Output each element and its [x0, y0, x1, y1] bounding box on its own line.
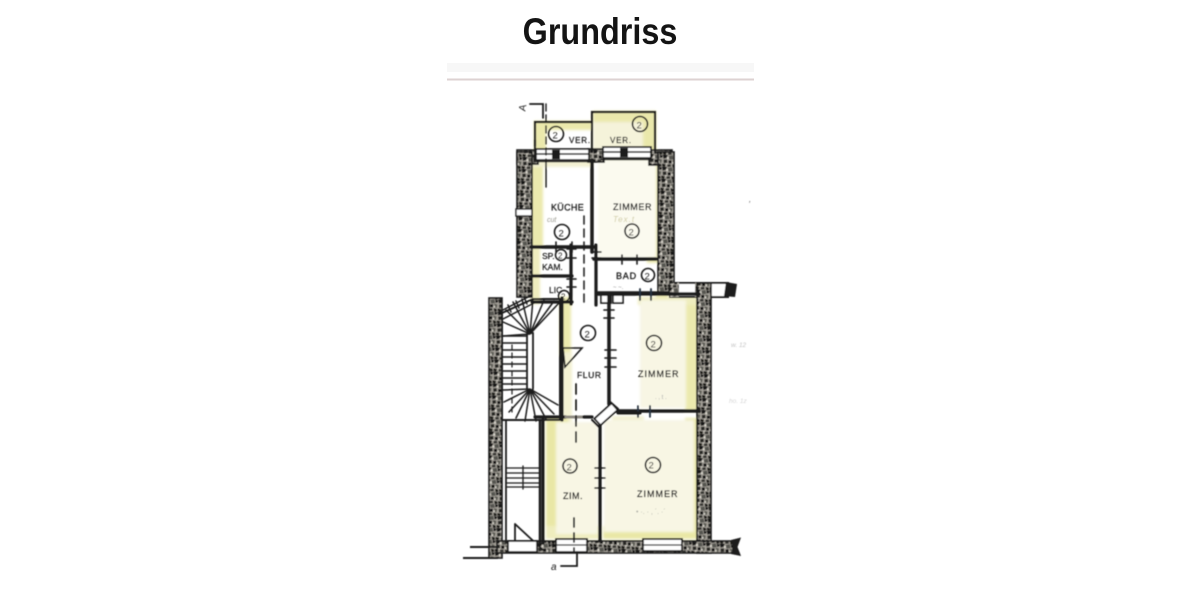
- svg-text:A: A: [517, 103, 529, 112]
- svg-text:VER.: VER.: [610, 136, 632, 145]
- svg-text:2: 2: [651, 340, 656, 351]
- svg-text:2: 2: [559, 229, 564, 240]
- svg-text:~ ~.: ~ ~.: [613, 285, 624, 291]
- svg-text:2: 2: [567, 463, 572, 474]
- svg-text:2: 2: [649, 461, 654, 472]
- svg-text:• ·. · , ´. ·´: • ·. · , ´. ·´: [636, 509, 666, 516]
- svg-text:KAM.: KAM.: [542, 262, 563, 272]
- svg-text:2: 2: [629, 228, 634, 239]
- svg-text:ZIM.: ZIM.: [563, 491, 583, 501]
- svg-text:a: a: [551, 562, 557, 573]
- svg-text:ZIMMER: ZIMMER: [638, 369, 680, 379]
- svg-text:w. 12: w. 12: [731, 342, 747, 349]
- svg-text:ho. 1z: ho. 1z: [729, 398, 747, 405]
- svg-text:2: 2: [645, 272, 650, 283]
- svg-text:′: ′: [749, 201, 751, 208]
- svg-text:SP.: SP.: [542, 251, 555, 261]
- svg-text:VER.: VER.: [569, 136, 591, 145]
- svg-text:ZIMMER: ZIMMER: [613, 202, 652, 212]
- svg-text:2: 2: [585, 330, 590, 341]
- svg-text:cut: cut: [547, 217, 557, 224]
- svg-text:ZIMMER: ZIMMER: [637, 489, 679, 499]
- svg-text:FLUR: FLUR: [577, 370, 602, 380]
- svg-text:KÜCHE: KÜCHE: [551, 203, 584, 213]
- svg-text:BAD: BAD: [616, 271, 637, 281]
- svg-text:2: 2: [558, 252, 563, 261]
- svg-text:Tex.t: Tex.t: [613, 215, 635, 224]
- svg-text:. , t .: . , t .: [655, 395, 667, 401]
- svg-text:2: 2: [637, 121, 642, 132]
- svg-text:2: 2: [553, 131, 558, 142]
- svg-text:2: 2: [561, 293, 566, 302]
